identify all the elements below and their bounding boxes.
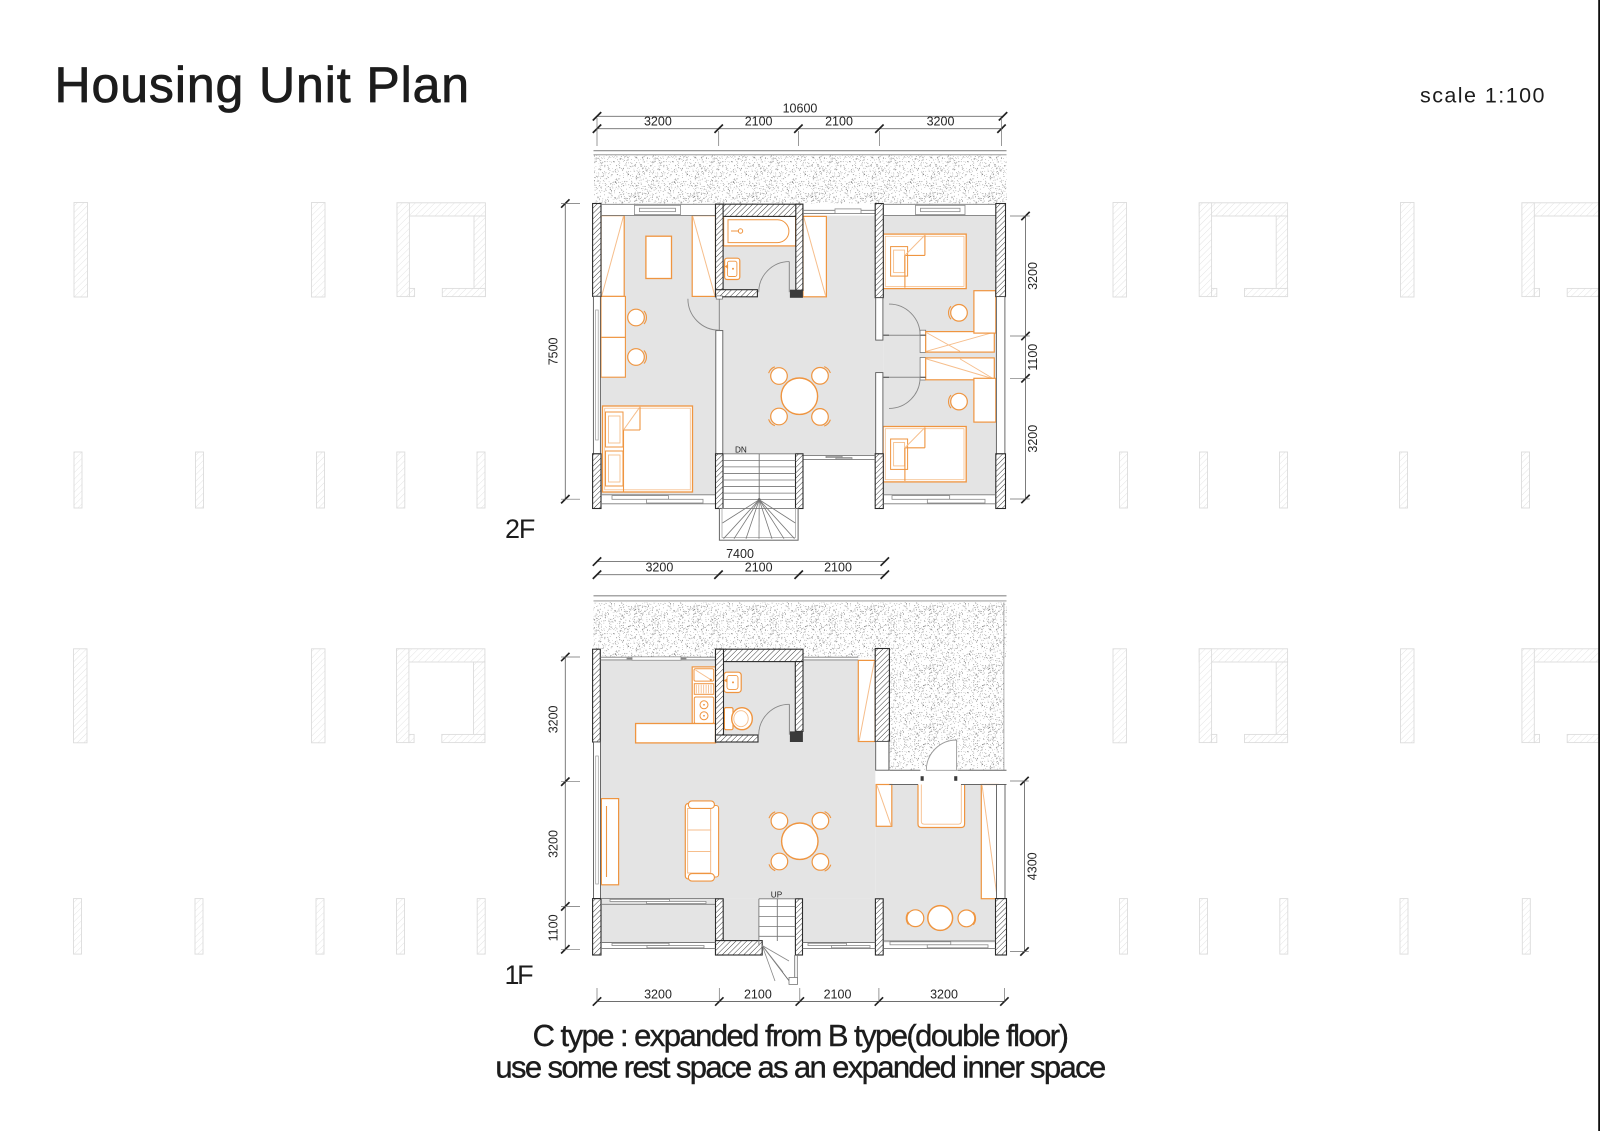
svg-text:2100: 2100 bbox=[745, 561, 773, 575]
svg-text:2100: 2100 bbox=[745, 115, 773, 129]
svg-text:1100: 1100 bbox=[1026, 344, 1040, 371]
svg-text:3200: 3200 bbox=[644, 987, 672, 1001]
svg-text:3200: 3200 bbox=[927, 115, 955, 129]
svg-text:3200: 3200 bbox=[547, 705, 561, 733]
svg-text:2F: 2F bbox=[505, 514, 535, 544]
svg-text:Housing Unit Plan: Housing Unit Plan bbox=[55, 57, 471, 113]
svg-text:C type : expanded from B type(: C type : expanded from B type(double flo… bbox=[533, 1018, 1068, 1053]
svg-text:3200: 3200 bbox=[930, 987, 958, 1001]
svg-text:3200: 3200 bbox=[547, 830, 561, 858]
svg-text:scale 1:100: scale 1:100 bbox=[1420, 84, 1546, 108]
svg-text:2100: 2100 bbox=[824, 987, 852, 1001]
svg-text:1F: 1F bbox=[505, 960, 534, 990]
svg-text:2100: 2100 bbox=[824, 561, 852, 575]
svg-text:use some rest space as an expa: use some rest space as an expanded inner… bbox=[495, 1050, 1105, 1085]
svg-text:UP: UP bbox=[771, 891, 783, 900]
svg-text:1100: 1100 bbox=[547, 914, 561, 941]
svg-text:7400: 7400 bbox=[726, 547, 754, 561]
svg-text:3200: 3200 bbox=[644, 115, 672, 129]
svg-text:3200: 3200 bbox=[645, 561, 673, 575]
svg-text:3200: 3200 bbox=[1026, 425, 1040, 453]
svg-text:4300: 4300 bbox=[1026, 852, 1040, 880]
svg-text:7500: 7500 bbox=[547, 337, 561, 365]
svg-text:2100: 2100 bbox=[744, 987, 772, 1001]
svg-text:3200: 3200 bbox=[1026, 262, 1040, 290]
svg-text:10600: 10600 bbox=[783, 102, 818, 116]
svg-text:2100: 2100 bbox=[825, 115, 853, 129]
svg-text:DN: DN bbox=[735, 445, 747, 454]
